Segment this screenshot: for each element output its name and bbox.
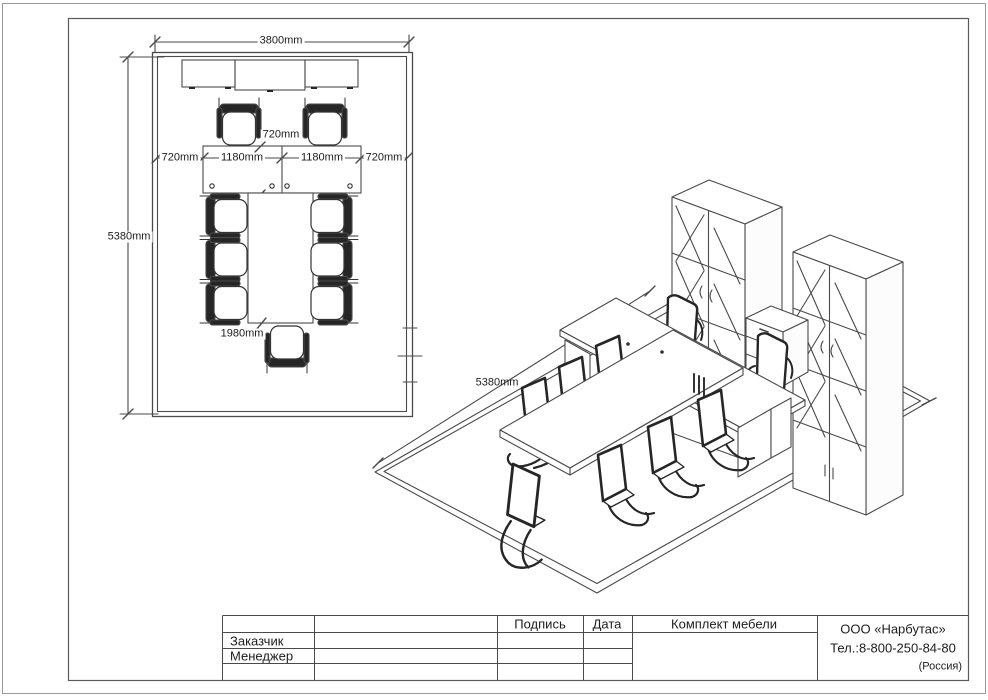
- drawing-sheet: 3800mm 5380mm 720mm 1180mm 1180mm 720mm …: [0, 0, 988, 700]
- plan-dim-table-length-label: 1980mm: [219, 329, 266, 340]
- drawing-canvas: [0, 0, 988, 700]
- plan-view: [120, 35, 422, 419]
- plan-dim-left-clearance-label: 720mm: [160, 153, 201, 164]
- plan-dim-desk1-label: 1180mm: [219, 153, 265, 164]
- iso-view: [373, 180, 936, 593]
- iso-cabinet-2: [793, 235, 903, 515]
- title-block-customer-label: Заказчик: [230, 635, 283, 648]
- plan-conference-table: [248, 193, 313, 330]
- title-block-company-phone: Тел.:8-800-250-84-80: [830, 642, 956, 655]
- plan-dim-width-label: 3800mm: [258, 36, 305, 47]
- title-block-project-title: Комплект мебели: [671, 618, 777, 631]
- title-block-date-header: Дата: [593, 618, 622, 631]
- title-block-company-country: (Россия): [919, 662, 962, 673]
- iso-dim-depth-label: 5380mm: [474, 378, 521, 389]
- plan-dim-right-clearance-label: 720mm: [364, 153, 405, 164]
- title-block-signature-header: Подпись: [514, 618, 565, 631]
- title-block-manager-label: Менеджер: [230, 650, 293, 663]
- plan-cabinets: [182, 60, 358, 92]
- plan-dim-desk2-label: 1180mm: [299, 153, 345, 164]
- title-block-company-name: ООО «Нарбутас»: [840, 623, 945, 636]
- plan-dim-height-label: 5380mm: [106, 232, 153, 243]
- plan-dim-desk-depth-label: 720mm: [261, 130, 302, 141]
